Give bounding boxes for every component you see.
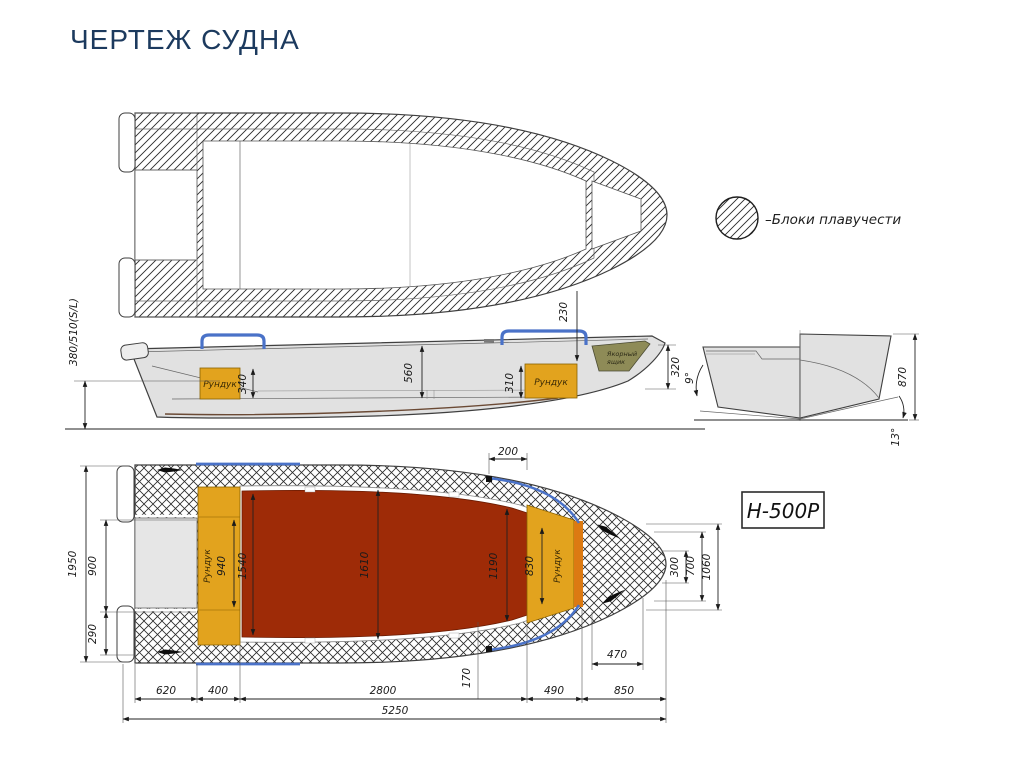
dim-340: 340 — [237, 374, 249, 394]
ship-drawing-svg: –Блоки плавучести Рундук Рундук Якорный … — [0, 0, 1015, 764]
dim-400: 400 — [208, 685, 228, 697]
dim-900: 900 — [87, 556, 99, 576]
section-right-half — [800, 334, 891, 418]
transom-angle-arc — [696, 365, 703, 396]
dim-560: 560 — [403, 363, 415, 383]
fwd-locker-label: Рундук — [534, 378, 568, 388]
dim-620: 620 — [156, 685, 176, 697]
anchor-box-label-2: ящик — [607, 358, 625, 366]
outboard-bracket — [120, 342, 149, 361]
dim-13deg: 13° — [890, 428, 902, 447]
rail-mount-bottom — [486, 646, 492, 652]
dim-5250: 5250 — [382, 705, 409, 717]
dim-850: 850 — [614, 685, 634, 697]
floor-tick-2 — [449, 492, 459, 497]
rail-mount-top — [486, 476, 492, 482]
plan-fwd-locker-label: Рундук — [553, 549, 563, 583]
top-view — [119, 113, 667, 317]
plan-motor-well — [135, 518, 197, 608]
floor-tick-1 — [305, 487, 315, 492]
dim-9deg: 9° — [684, 372, 696, 384]
dim-310: 310 — [504, 373, 516, 393]
legend-label: –Блоки плавучести — [765, 212, 901, 228]
aft-locker-label: Рундук — [203, 380, 237, 390]
dim-230: 230 — [558, 302, 570, 322]
legend: –Блоки плавучести — [716, 197, 901, 239]
dim-870: 870 — [897, 367, 909, 387]
floor-tick-4 — [449, 633, 459, 638]
section-view: 13° 9° 870 — [684, 330, 919, 446]
dim-830: 830 — [524, 556, 536, 576]
plan-transom-corner-bottom — [117, 606, 134, 662]
drawing-page: ЧЕРТЕЖ СУДНА — [0, 0, 1015, 764]
buoyancy-legend-icon — [716, 197, 758, 239]
dim-320: 320 — [670, 357, 682, 377]
dim-940: 940 — [216, 556, 228, 576]
dim-1190: 1190 — [488, 552, 500, 579]
dim-380: 380/510(S/L) — [68, 298, 80, 366]
dim-470: 470 — [607, 649, 627, 661]
dim-170: 170 — [461, 668, 473, 688]
model-plate: Н-500Р — [742, 492, 824, 528]
anchor-box-label-1: Якорный — [606, 350, 637, 358]
dim-1060: 1060 — [701, 553, 713, 580]
dim-200: 200 — [498, 446, 518, 458]
plan-aft-locker-label: Рундук — [203, 549, 213, 583]
top-view-stern-well — [135, 170, 197, 260]
plan-transom-corner-top — [117, 466, 134, 522]
dim-290: 290 — [87, 624, 99, 644]
top-view-cockpit — [203, 141, 586, 289]
dim-1540: 1540 — [237, 552, 249, 579]
floor-tick-3 — [305, 638, 315, 643]
dim-700: 700 — [685, 556, 697, 576]
deck-cleat-side — [484, 339, 494, 343]
plan-view: Рундук 940 1540 1610 1190 830 Рундук 195… — [67, 446, 722, 723]
dim-490: 490 — [544, 685, 564, 697]
dim-1950: 1950 — [67, 550, 79, 577]
dim-1610: 1610 — [359, 551, 371, 578]
dim-2800: 2800 — [370, 685, 397, 697]
transom-corner-top — [119, 113, 135, 172]
section-left-half — [703, 347, 800, 418]
fwd-locker-front-strip — [574, 521, 583, 607]
dim-300: 300 — [669, 557, 681, 577]
transom-corner-bottom — [119, 258, 135, 317]
deadrise-arc — [899, 396, 904, 418]
model-label: Н-500Р — [747, 499, 820, 523]
